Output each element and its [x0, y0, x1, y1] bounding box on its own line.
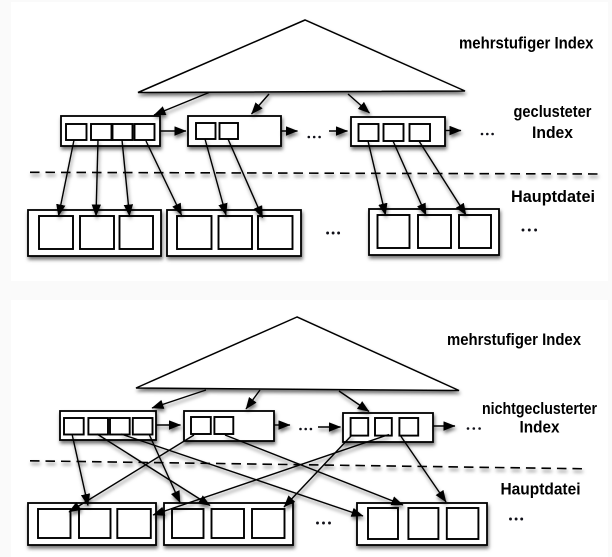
svg-text:Index: Index — [532, 123, 573, 142]
svg-text:mehrstufiger Index: mehrstufiger Index — [459, 34, 594, 53]
svg-text:Hauptdatei: Hauptdatei — [501, 480, 581, 499]
svg-text:mehrstufiger Index: mehrstufiger Index — [447, 330, 581, 349]
svg-text:geclusteter: geclusteter — [514, 102, 592, 121]
svg-text:Index: Index — [520, 418, 560, 437]
svg-text:nichtgeclusterter: nichtgeclusterter — [482, 399, 597, 418]
svg-text:Hauptdatei: Hauptdatei — [511, 187, 595, 206]
